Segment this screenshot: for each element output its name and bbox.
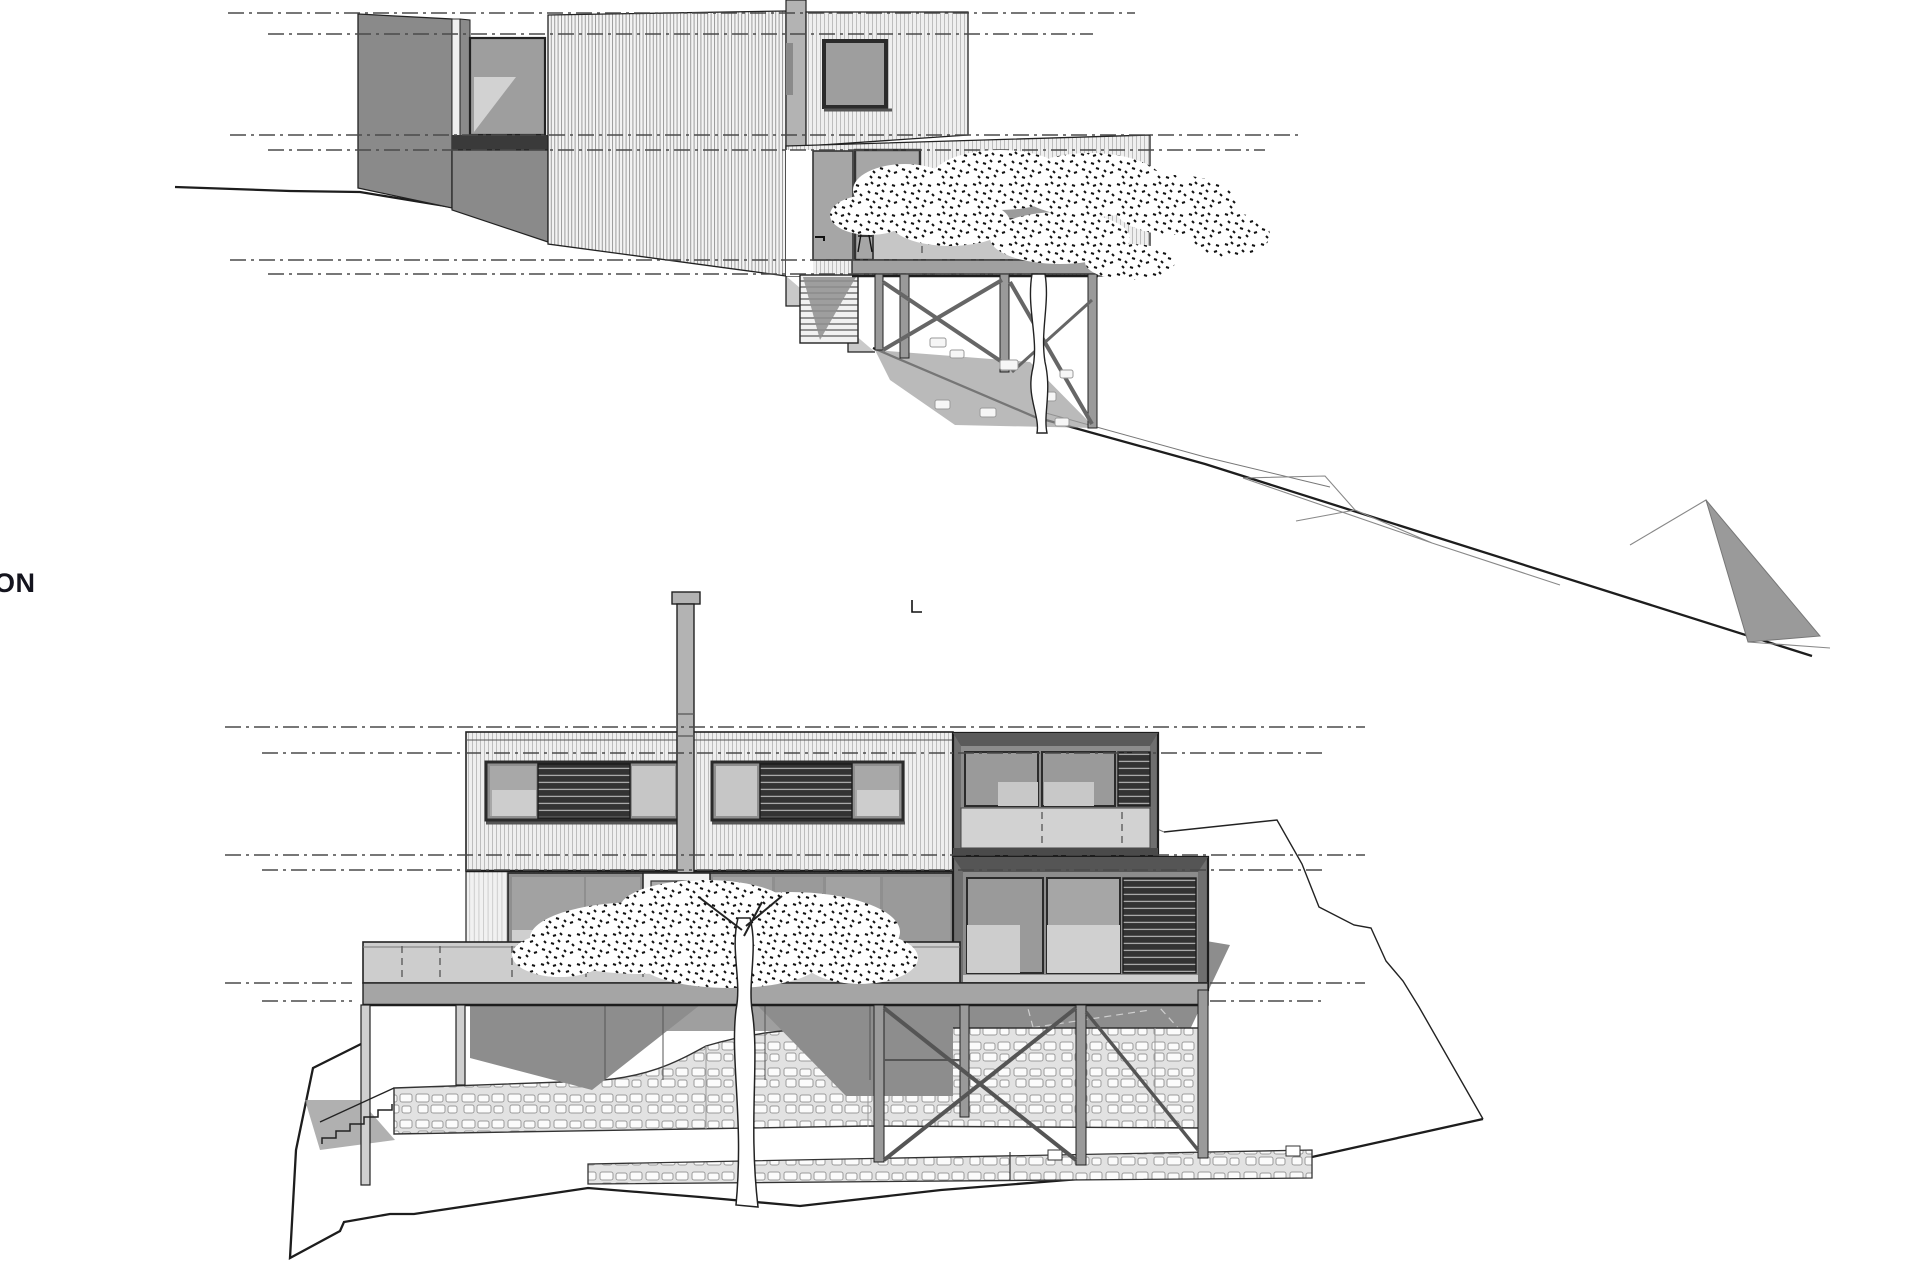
window-pane <box>716 766 757 816</box>
louver-panel <box>760 764 852 818</box>
box-top-reveal <box>953 733 1158 746</box>
stilt-post <box>900 274 909 358</box>
pane-reflection <box>492 790 536 816</box>
stilt-post <box>1198 990 1208 1158</box>
floor-band <box>452 135 552 150</box>
box-louver <box>1123 878 1196 973</box>
lower-elevation <box>225 592 1483 1258</box>
stilt-post <box>1000 274 1009 372</box>
box-bottom-frame <box>953 848 1158 855</box>
upper-stair-group <box>786 275 875 352</box>
pane-reflection <box>998 782 1038 806</box>
box-sill <box>963 975 1198 982</box>
window-band-left <box>486 762 680 823</box>
stilt-post <box>875 274 883 350</box>
stilt-post <box>874 1005 884 1162</box>
deck-slab <box>363 983 1208 1005</box>
corner-mark <box>912 600 922 612</box>
corrugated-wall-tall <box>548 11 786 276</box>
chimney-cap <box>672 592 700 604</box>
rock-pyramid-shaded-face <box>1706 500 1820 642</box>
drawing-sheet: ON <box>0 0 1920 1280</box>
upper-elevation <box>175 0 1830 656</box>
pane-reflection <box>967 925 1020 973</box>
rock-facets <box>1243 476 1560 585</box>
lower-wall-panel <box>452 150 548 242</box>
deck-post <box>361 1005 370 1185</box>
entry-recess <box>786 150 813 276</box>
elevations-drawing <box>0 0 1920 1280</box>
louver-panel <box>538 764 630 818</box>
pane-reflection <box>857 790 899 816</box>
pane-reflection <box>1044 782 1094 806</box>
elevation-sheet: { "canvas": { "width": 1920, "height": 1… <box>0 0 1920 1280</box>
deck-post <box>456 1005 465 1085</box>
cross-brace <box>1012 300 1092 372</box>
stilt-post <box>1088 274 1097 428</box>
box-louver <box>1118 752 1150 806</box>
end-wall <box>358 14 452 208</box>
stilt-post <box>1076 1005 1086 1165</box>
chimney-flue-detail <box>786 43 793 95</box>
upper-window <box>824 41 886 107</box>
pane-reflection <box>1047 925 1120 973</box>
window-band-right <box>712 762 905 823</box>
base-wall-notch <box>1286 1146 1300 1156</box>
base-wall-notch <box>1048 1150 1062 1160</box>
lower-box <box>953 857 1208 990</box>
upper-box <box>953 733 1158 855</box>
window-pane <box>632 766 675 816</box>
